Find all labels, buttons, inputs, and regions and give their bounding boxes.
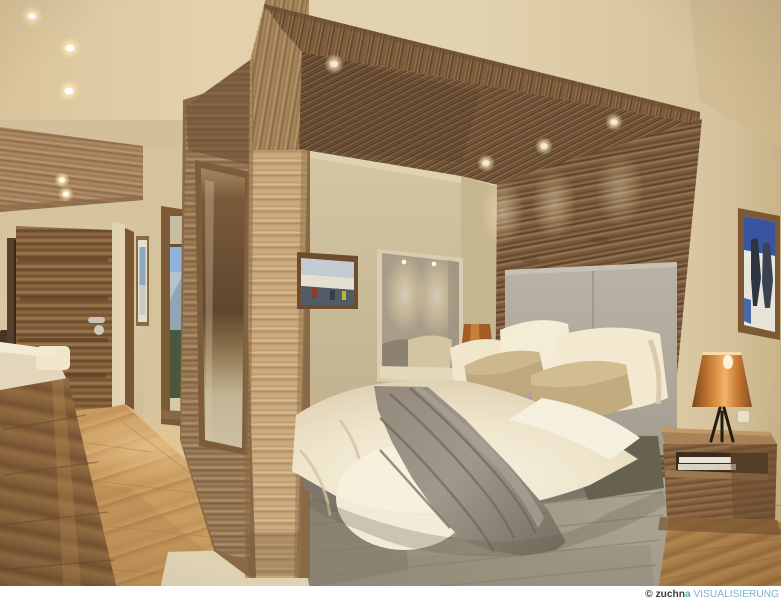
svg-text:© zuchna VISUALISIERUNG: © zuchna VISUALISIERUNG xyxy=(645,589,779,600)
